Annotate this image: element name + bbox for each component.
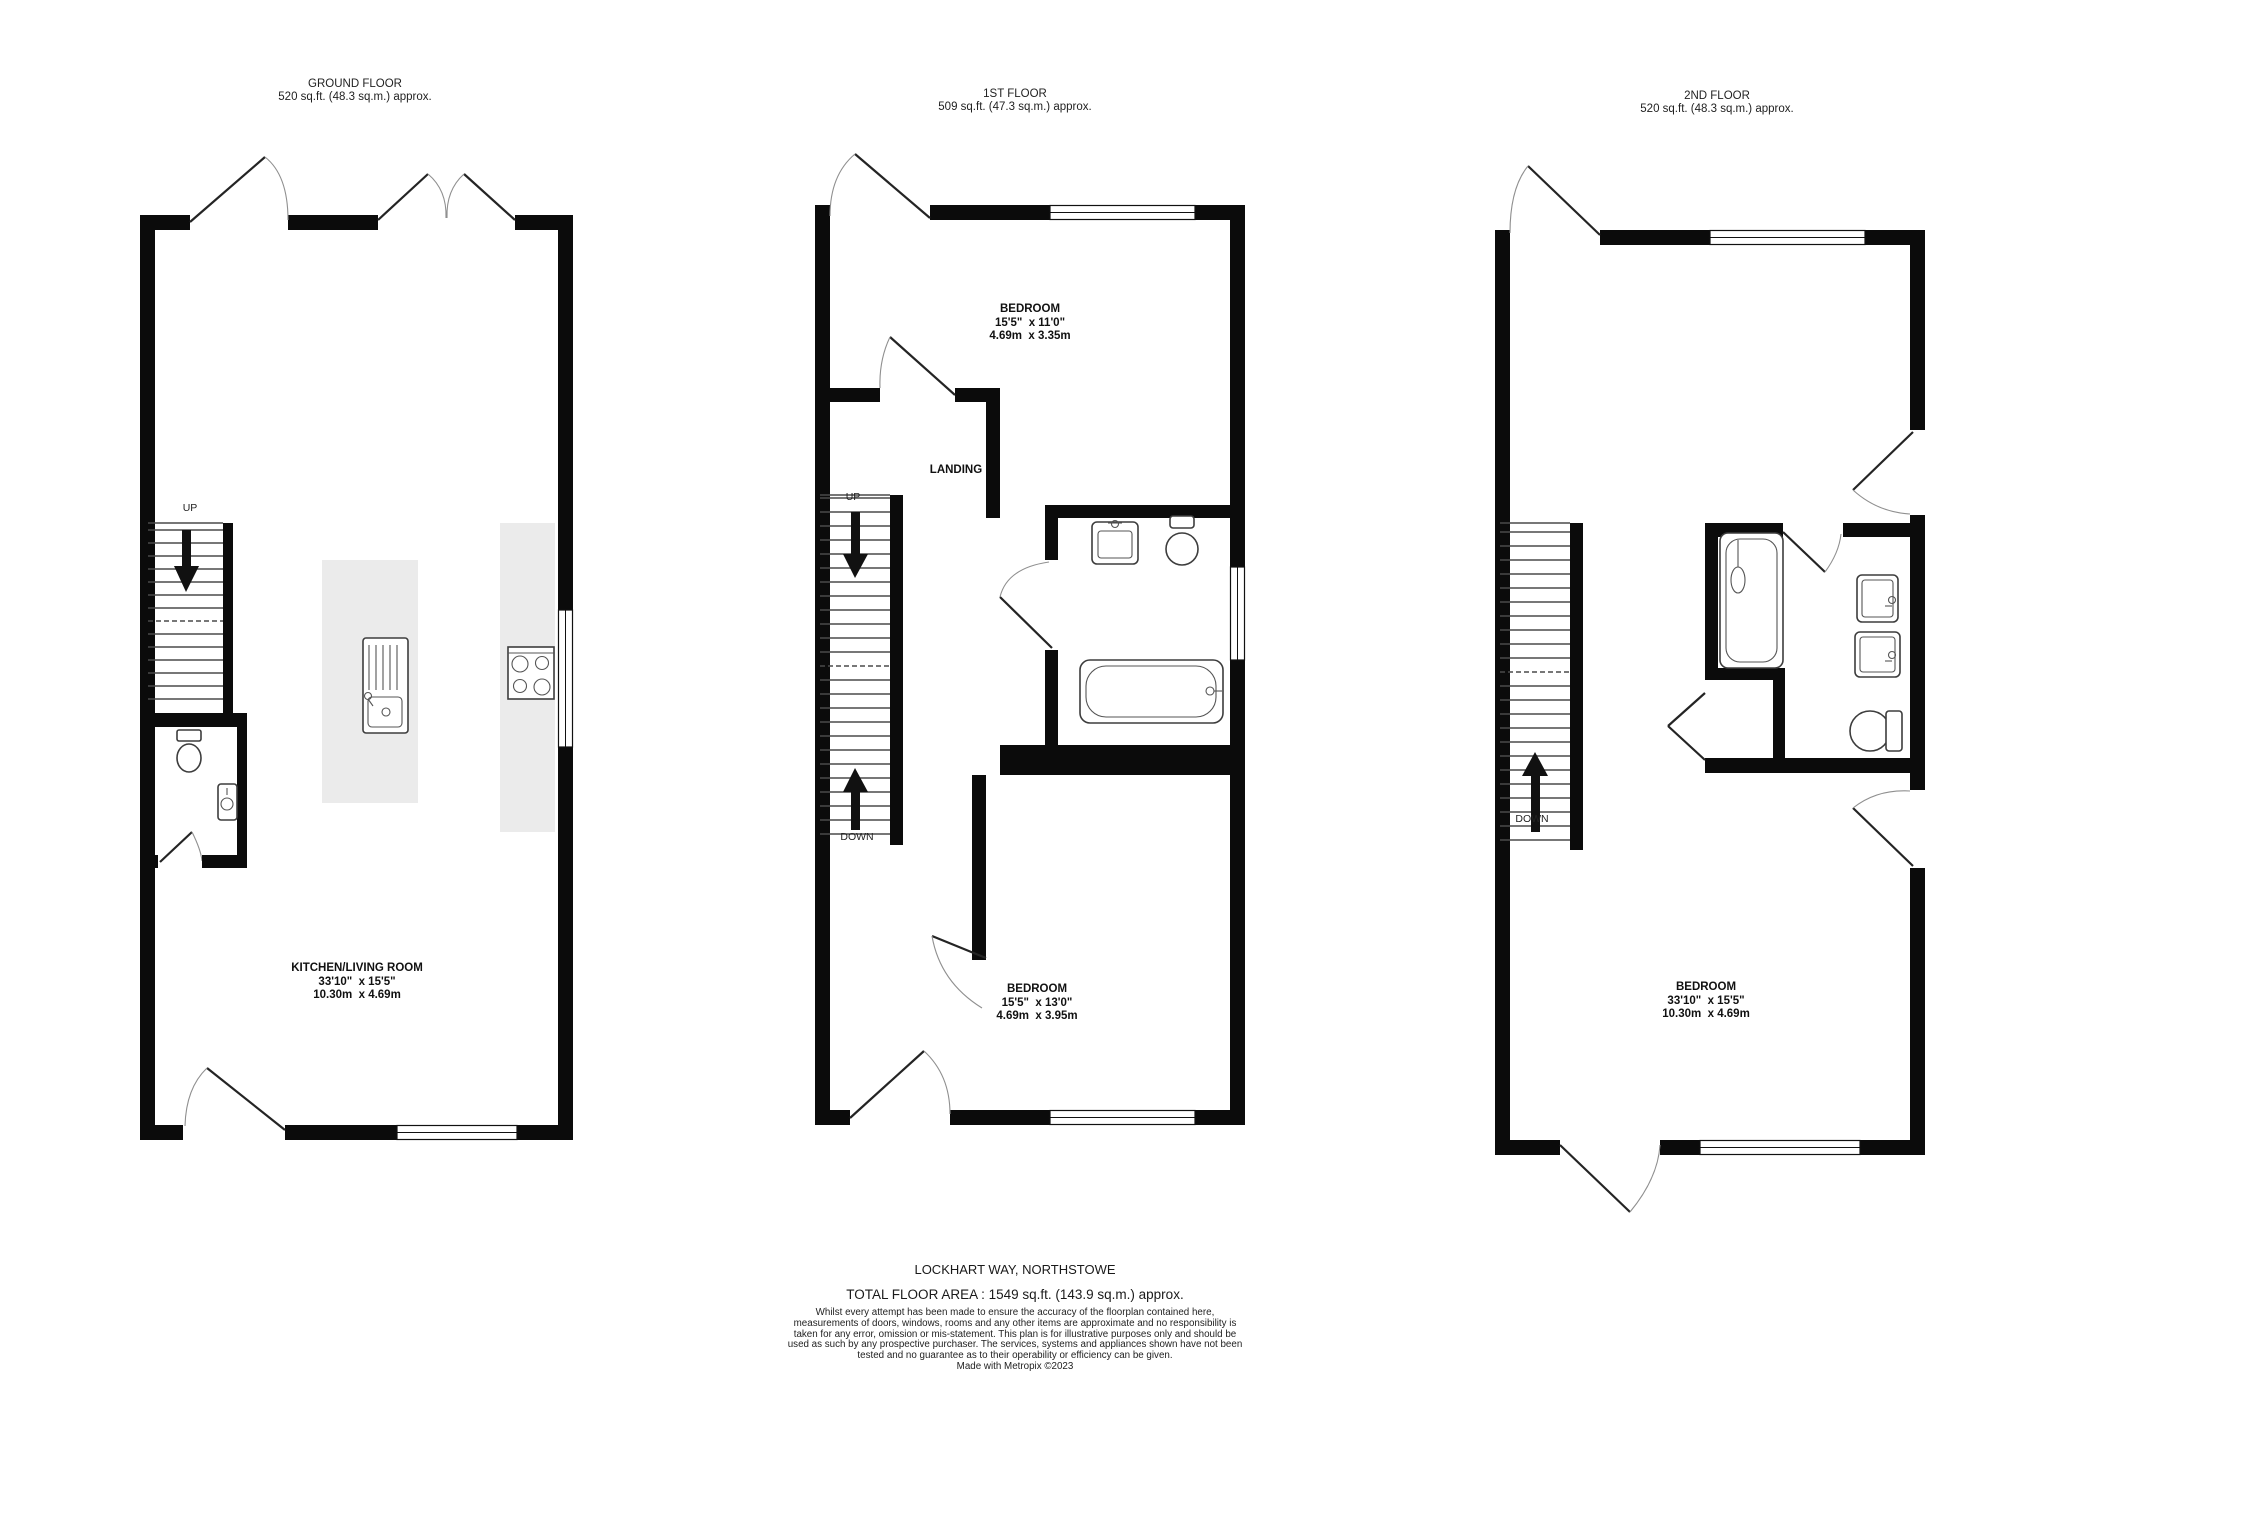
room-dims-metric: 10.30m x 4.69m [1556, 1008, 1856, 1022]
second-floor-plan [1480, 140, 1950, 1240]
shower-bath-icon [1720, 533, 1783, 668]
metropix-credit: Made with Metropix ©2023 [782, 1362, 1248, 1373]
second-floor-title: 2ND FLOOR 520 sq.ft. (48.3 sq.m.) approx… [1567, 90, 1867, 116]
ground-up-label: UP [165, 502, 215, 514]
second-bedroom-label: BEDROOM 33'10" x 15'5" 10.30m x 4.69m [1556, 981, 1856, 1022]
ground-floor-plan [130, 130, 600, 1170]
first-down-label: DOWN [832, 831, 882, 843]
sink-icon [1092, 521, 1138, 565]
disclaimer-text: Whilst every attempt has been made to en… [782, 1308, 1248, 1362]
ground-floor-title-name: GROUND FLOOR [205, 78, 505, 91]
first-floor-title: 1ST FLOOR 509 sq.ft. (47.3 sq.m.) approx… [865, 88, 1165, 114]
room-name: BEDROOM [880, 303, 1180, 317]
toilet-icon [1166, 516, 1198, 565]
room-dims-imperial: 33'10" x 15'5" [207, 976, 507, 990]
first-doors [830, 154, 1052, 1118]
room-dims-metric: 10.30m x 4.69m [207, 989, 507, 1003]
kitchen-living-room-label: KITCHEN/LIVING ROOM 33'10" x 15'5" 10.30… [207, 962, 507, 1003]
ground-floor-title-area: 520 sq.ft. (48.3 sq.m.) approx. [205, 91, 505, 104]
toilet-icon [177, 730, 201, 772]
ground-floor-title: GROUND FLOOR 520 sq.ft. (48.3 sq.m.) app… [205, 78, 505, 104]
sink-icon-2 [1855, 632, 1900, 677]
bath-icon [1080, 660, 1223, 723]
first-floor-title-area: 509 sq.ft. (47.3 sq.m.) approx. [865, 101, 1165, 114]
first-bedroom-front-label: BEDROOM 15'5" x 11'0" 4.69m x 3.35m [880, 303, 1180, 344]
room-name: BEDROOM [887, 983, 1187, 997]
floorplan-page: { "floors": [ { "id": "ground", "title":… [0, 0, 2256, 1540]
property-address: LOCKHART WAY, NORTHSTOWE [782, 1262, 1248, 1277]
first-up-label: UP [828, 491, 878, 503]
toilet-icon [1850, 711, 1902, 751]
sink-icon [1857, 575, 1898, 622]
landing-label: LANDING [881, 464, 1031, 478]
first-bedroom-rear-label: BEDROOM 15'5" x 13'0" 4.69m x 3.95m [887, 983, 1187, 1024]
second-down-label: DOWN [1507, 813, 1557, 825]
room-name: LANDING [881, 464, 1031, 478]
first-staircase [820, 495, 903, 845]
footer: LOCKHART WAY, NORTHSTOWE TOTAL FLOOR ARE… [782, 1262, 1248, 1373]
room-dims-imperial: 15'5" x 13'0" [887, 997, 1187, 1011]
room-dims-imperial: 15'5" x 11'0" [880, 317, 1180, 331]
second-floor-title-area: 520 sq.ft. (48.3 sq.m.) approx. [1567, 103, 1867, 116]
room-name: KITCHEN/LIVING ROOM [207, 962, 507, 976]
hob-icon [508, 647, 554, 699]
room-name: BEDROOM [1556, 981, 1856, 995]
first-floor-title-name: 1ST FLOOR [865, 88, 1165, 101]
first-bathroom [1080, 516, 1223, 723]
room-dims-metric: 4.69m x 3.95m [887, 1010, 1187, 1024]
total-floor-area: TOTAL FLOOR AREA : 1549 sq.ft. (143.9 sq… [782, 1287, 1248, 1302]
kitchen-sink-icon [363, 638, 408, 733]
room-dims-imperial: 33'10" x 15'5" [1556, 995, 1856, 1009]
second-bathroom [1720, 533, 1902, 751]
second-staircase [1500, 523, 1583, 850]
second-floor-title-name: 2ND FLOOR [1567, 90, 1867, 103]
ground-staircase [148, 523, 233, 720]
room-dims-metric: 4.69m x 3.35m [880, 330, 1180, 344]
basin-icon [218, 784, 237, 820]
